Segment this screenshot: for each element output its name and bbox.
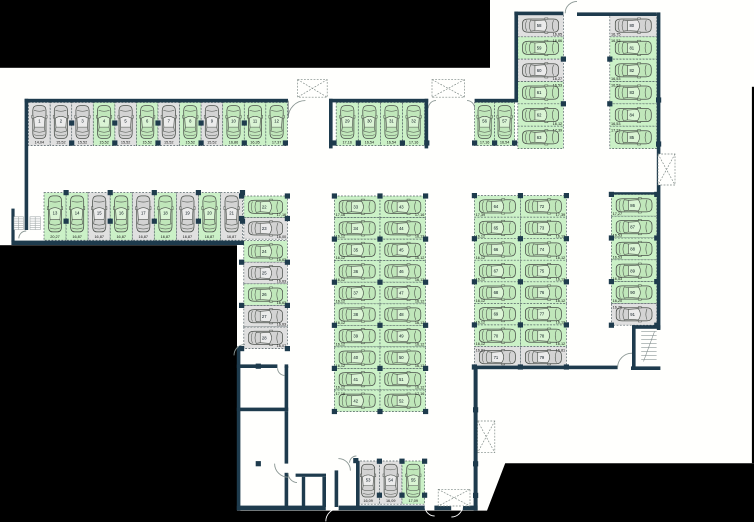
svg-text:29: 29 xyxy=(345,119,350,124)
svg-text:61: 61 xyxy=(537,90,542,95)
svg-text:88: 88 xyxy=(630,247,635,252)
svg-text:75: 75 xyxy=(540,269,545,274)
svg-text:15,52: 15,52 xyxy=(78,141,88,145)
svg-text:59: 59 xyxy=(537,46,542,51)
svg-text:25: 25 xyxy=(262,271,267,276)
svg-text:17,16: 17,16 xyxy=(277,213,287,217)
svg-text:18: 18 xyxy=(163,211,168,216)
svg-text:82: 82 xyxy=(629,68,634,73)
svg-text:17,16: 17,16 xyxy=(342,141,352,145)
svg-text:16,63: 16,63 xyxy=(277,301,287,305)
svg-text:34: 34 xyxy=(353,226,358,231)
svg-text:16,27: 16,27 xyxy=(553,77,563,81)
svg-text:71: 71 xyxy=(494,355,499,360)
svg-text:15,52: 15,52 xyxy=(142,141,152,145)
svg-text:17: 17 xyxy=(141,211,146,216)
svg-text:90: 90 xyxy=(630,290,635,295)
svg-text:17,27: 17,27 xyxy=(611,128,621,132)
svg-text:33: 33 xyxy=(353,204,358,209)
svg-text:16,12: 16,12 xyxy=(556,342,566,346)
svg-text:52: 52 xyxy=(399,398,404,403)
svg-text:20,27: 20,27 xyxy=(50,235,60,239)
svg-text:39: 39 xyxy=(353,334,358,339)
svg-text:12: 12 xyxy=(274,119,279,124)
svg-text:17,16: 17,16 xyxy=(409,141,419,145)
svg-text:17,16: 17,16 xyxy=(336,392,346,396)
svg-text:16,12: 16,12 xyxy=(556,277,566,281)
svg-text:16,12: 16,12 xyxy=(336,321,346,325)
svg-text:16,12: 16,12 xyxy=(415,343,425,347)
svg-text:17,27: 17,27 xyxy=(613,212,623,216)
svg-text:17,39: 17,39 xyxy=(476,213,486,217)
svg-text:17,09: 17,09 xyxy=(409,499,419,503)
svg-text:16,12: 16,12 xyxy=(415,299,425,303)
svg-text:76: 76 xyxy=(540,290,545,295)
svg-text:91: 91 xyxy=(630,312,635,317)
svg-text:16,12: 16,12 xyxy=(336,278,346,282)
svg-text:84: 84 xyxy=(629,113,634,118)
svg-text:16,12: 16,12 xyxy=(415,386,425,390)
svg-text:23: 23 xyxy=(262,226,267,231)
svg-text:16,53: 16,53 xyxy=(613,234,623,238)
svg-text:16,53: 16,53 xyxy=(611,39,621,43)
svg-text:16,12: 16,12 xyxy=(336,343,346,347)
svg-text:78: 78 xyxy=(540,333,545,338)
svg-text:67: 67 xyxy=(494,269,499,274)
svg-text:15,52: 15,52 xyxy=(207,141,217,145)
svg-text:77: 77 xyxy=(540,312,545,317)
svg-text:14: 14 xyxy=(75,211,80,216)
svg-text:79: 79 xyxy=(540,355,545,360)
svg-text:47: 47 xyxy=(399,291,404,296)
svg-text:11: 11 xyxy=(253,119,258,124)
svg-text:30: 30 xyxy=(367,119,372,124)
svg-text:20: 20 xyxy=(207,211,212,216)
svg-text:50: 50 xyxy=(399,355,404,360)
svg-text:16,53: 16,53 xyxy=(613,277,623,281)
svg-text:16,65: 16,65 xyxy=(553,32,563,36)
svg-text:16,00: 16,00 xyxy=(277,235,287,239)
svg-text:16,53: 16,53 xyxy=(611,77,621,81)
svg-text:16,12: 16,12 xyxy=(415,235,425,239)
svg-text:43: 43 xyxy=(399,204,404,209)
svg-text:15,52: 15,52 xyxy=(164,141,174,145)
svg-text:16,12: 16,12 xyxy=(476,234,486,238)
svg-text:14,04: 14,04 xyxy=(35,141,45,145)
svg-text:16,63: 16,63 xyxy=(277,258,287,262)
svg-text:48: 48 xyxy=(399,312,404,317)
svg-text:17,16: 17,16 xyxy=(336,213,346,217)
svg-text:17,16: 17,16 xyxy=(480,141,490,145)
svg-text:16,12: 16,12 xyxy=(415,278,425,282)
svg-text:16,63: 16,63 xyxy=(277,279,287,283)
svg-text:16,12: 16,12 xyxy=(415,256,425,260)
svg-text:16,53: 16,53 xyxy=(613,255,623,259)
svg-text:64: 64 xyxy=(494,204,499,209)
svg-text:31: 31 xyxy=(389,119,394,124)
svg-text:44: 44 xyxy=(399,226,404,231)
svg-text:17,37: 17,37 xyxy=(272,141,282,145)
svg-text:46: 46 xyxy=(399,269,404,274)
svg-text:16: 16 xyxy=(119,211,124,216)
svg-text:16,53: 16,53 xyxy=(553,84,563,88)
svg-text:22: 22 xyxy=(262,204,267,209)
svg-text:16,53: 16,53 xyxy=(611,122,621,126)
svg-text:51: 51 xyxy=(399,377,404,382)
svg-text:16,12: 16,12 xyxy=(336,235,346,239)
svg-text:58: 58 xyxy=(537,23,542,28)
svg-text:28: 28 xyxy=(262,335,267,340)
svg-text:16,12: 16,12 xyxy=(476,277,486,281)
svg-text:16,66: 16,66 xyxy=(553,39,563,43)
svg-text:15,52: 15,52 xyxy=(121,141,131,145)
svg-text:21: 21 xyxy=(229,211,234,216)
svg-text:16,86: 16,86 xyxy=(229,141,239,145)
svg-text:16,12: 16,12 xyxy=(336,386,346,390)
svg-text:16,09: 16,09 xyxy=(363,499,373,503)
svg-text:16,12: 16,12 xyxy=(556,256,566,260)
svg-text:87: 87 xyxy=(630,225,635,230)
svg-text:85: 85 xyxy=(629,135,634,140)
svg-text:16,75: 16,75 xyxy=(611,32,621,36)
svg-text:16,12: 16,12 xyxy=(476,299,486,303)
svg-text:16,12: 16,12 xyxy=(476,342,486,346)
svg-text:49: 49 xyxy=(399,334,404,339)
svg-text:16,54: 16,54 xyxy=(500,141,510,145)
svg-text:16,12: 16,12 xyxy=(556,234,566,238)
svg-text:72: 72 xyxy=(540,204,545,209)
svg-text:16,20: 16,20 xyxy=(613,299,623,303)
svg-text:16,87: 16,87 xyxy=(161,235,171,239)
svg-text:80: 80 xyxy=(629,23,634,28)
svg-text:16,87: 16,87 xyxy=(183,235,193,239)
svg-text:16,35: 16,35 xyxy=(250,141,260,145)
svg-text:17,39: 17,39 xyxy=(556,213,566,217)
svg-text:57: 57 xyxy=(502,119,507,124)
svg-text:69: 69 xyxy=(494,312,499,317)
svg-text:62: 62 xyxy=(537,113,542,118)
svg-text:74: 74 xyxy=(540,247,545,252)
svg-text:73: 73 xyxy=(540,226,545,231)
svg-text:54: 54 xyxy=(388,477,393,482)
svg-text:56: 56 xyxy=(482,119,487,124)
svg-text:16,87: 16,87 xyxy=(116,235,126,239)
svg-text:89: 89 xyxy=(630,268,635,273)
svg-text:42: 42 xyxy=(353,398,358,403)
svg-text:16,12: 16,12 xyxy=(476,321,486,325)
svg-text:16,63: 16,63 xyxy=(277,323,287,327)
svg-text:15,52: 15,52 xyxy=(186,141,196,145)
svg-text:16,54: 16,54 xyxy=(365,141,375,145)
svg-text:83: 83 xyxy=(629,90,634,95)
svg-text:37: 37 xyxy=(353,291,358,296)
svg-text:68: 68 xyxy=(494,290,499,295)
svg-text:19: 19 xyxy=(185,211,190,216)
svg-text:16,87: 16,87 xyxy=(72,235,82,239)
svg-text:17,16: 17,16 xyxy=(415,392,425,396)
svg-text:16,87: 16,87 xyxy=(139,235,149,239)
svg-text:13: 13 xyxy=(53,211,58,216)
svg-text:45: 45 xyxy=(399,248,404,253)
svg-text:36: 36 xyxy=(353,269,358,274)
svg-text:65: 65 xyxy=(494,226,499,231)
svg-text:60: 60 xyxy=(537,68,542,73)
svg-text:27: 27 xyxy=(262,314,267,319)
svg-text:16,87: 16,87 xyxy=(205,235,215,239)
svg-text:32: 32 xyxy=(411,119,416,124)
svg-text:16,81: 16,81 xyxy=(476,349,486,353)
svg-text:35: 35 xyxy=(353,248,358,253)
svg-text:38: 38 xyxy=(353,312,358,317)
svg-text:16,54: 16,54 xyxy=(387,141,397,145)
svg-text:16,09: 16,09 xyxy=(386,499,396,503)
svg-text:16,76: 16,76 xyxy=(613,306,623,310)
svg-text:16,12: 16,12 xyxy=(336,256,346,260)
svg-text:16,07: 16,07 xyxy=(277,344,287,348)
svg-text:86: 86 xyxy=(630,203,635,208)
svg-text:16,81: 16,81 xyxy=(556,349,566,353)
svg-text:41: 41 xyxy=(353,377,358,382)
svg-text:15: 15 xyxy=(97,211,102,216)
svg-text:16,87: 16,87 xyxy=(227,235,237,239)
svg-text:26: 26 xyxy=(262,292,267,297)
svg-text:70: 70 xyxy=(494,333,499,338)
svg-text:16,12: 16,12 xyxy=(553,122,563,126)
svg-text:66: 66 xyxy=(494,247,499,252)
svg-text:16,12: 16,12 xyxy=(415,321,425,325)
svg-text:24: 24 xyxy=(262,249,267,254)
svg-text:16,53: 16,53 xyxy=(611,84,621,88)
svg-text:16,12: 16,12 xyxy=(476,256,486,260)
svg-text:40: 40 xyxy=(353,355,358,360)
svg-text:53: 53 xyxy=(366,477,371,482)
svg-text:16,12: 16,12 xyxy=(415,364,425,368)
svg-text:17,39: 17,39 xyxy=(553,128,563,132)
svg-text:10: 10 xyxy=(231,119,236,124)
svg-text:81: 81 xyxy=(629,46,634,51)
svg-text:16,87: 16,87 xyxy=(94,235,104,239)
svg-text:17,16: 17,16 xyxy=(415,213,425,217)
svg-text:63: 63 xyxy=(537,135,542,140)
svg-text:15,52: 15,52 xyxy=(99,141,109,145)
svg-text:55: 55 xyxy=(411,477,416,482)
svg-text:15,52: 15,52 xyxy=(56,141,66,145)
svg-text:16,12: 16,12 xyxy=(556,321,566,325)
svg-text:16,12: 16,12 xyxy=(556,299,566,303)
svg-text:16,12: 16,12 xyxy=(336,364,346,368)
svg-text:16,12: 16,12 xyxy=(336,299,346,303)
